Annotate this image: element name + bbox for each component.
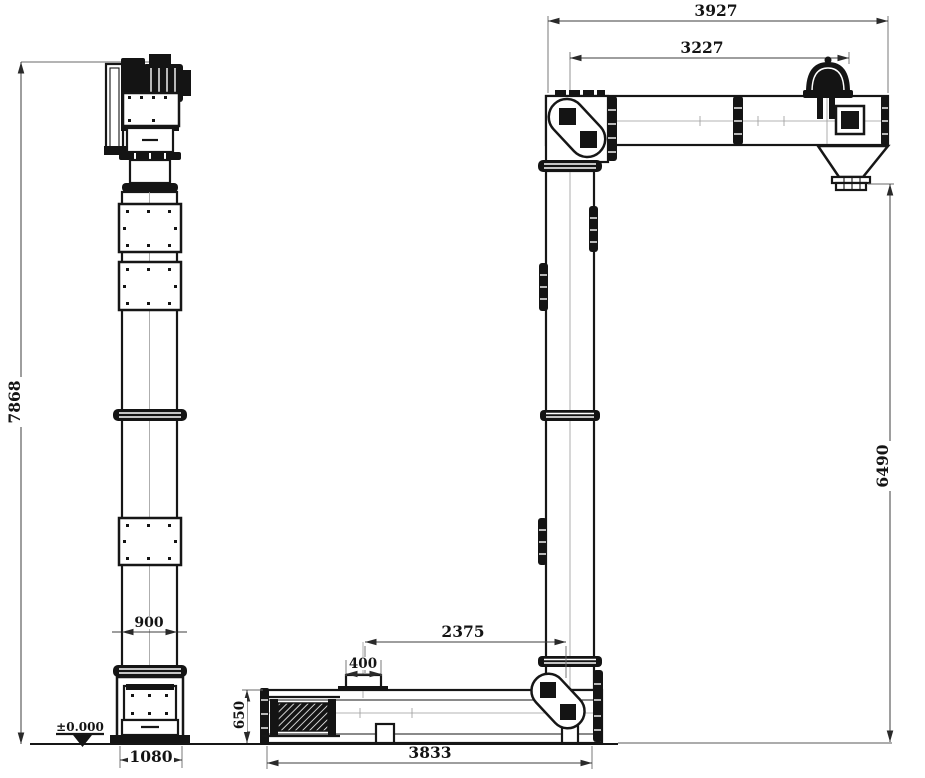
inspection-panel bbox=[119, 262, 181, 310]
sprocket-icon bbox=[559, 108, 576, 125]
inspection-panel bbox=[119, 518, 181, 565]
flange-joint bbox=[607, 96, 617, 161]
tail-drive-motor bbox=[262, 697, 340, 736]
dim-bottom-length-label: 3833 bbox=[408, 743, 451, 762]
flange-joint bbox=[733, 96, 743, 145]
dim-top-inner-label: 3227 bbox=[680, 38, 723, 57]
flange-joint bbox=[538, 656, 602, 667]
ground-level-marker: ±0.000 bbox=[56, 720, 104, 747]
dim-inlet-to-tail-label: 2375 bbox=[441, 622, 484, 641]
rail-bracket bbox=[538, 518, 547, 565]
dim-discharge-height-label: 6490 bbox=[873, 444, 892, 487]
inspection-panel bbox=[119, 204, 181, 252]
head-housing bbox=[123, 93, 179, 126]
dim-trough-height-label: 650 bbox=[232, 701, 248, 729]
dim-discharge-height: 6490 bbox=[868, 184, 894, 742]
rail-bracket bbox=[539, 263, 548, 311]
sprocket-icon bbox=[560, 704, 576, 720]
conveyor-column bbox=[538, 160, 602, 690]
dim-inlet-to-tail: 2375 bbox=[365, 622, 566, 678]
end-flange bbox=[593, 670, 603, 742]
dim-casing-width-label: 900 bbox=[134, 615, 163, 631]
dim-boot-width: 1080 bbox=[120, 746, 182, 768]
dim-bottom-length: 3833 bbox=[267, 743, 592, 769]
flange-joint bbox=[538, 160, 602, 172]
dim-trough-height: 650 bbox=[232, 690, 263, 743]
ga-drawing: 7868 bbox=[0, 0, 925, 778]
flange-joint bbox=[113, 409, 187, 421]
flange-joint bbox=[113, 665, 187, 677]
head-section bbox=[119, 93, 181, 192]
drawing-canvas: 7868 bbox=[0, 0, 925, 778]
dim-top-overall-label: 3927 bbox=[694, 1, 737, 20]
sprocket-icon bbox=[580, 131, 597, 148]
dim-overall-height-label: 7868 bbox=[5, 380, 24, 423]
ground-level-label: ±0.000 bbox=[56, 720, 104, 734]
z-conveyor: 3927 3227 bbox=[232, 1, 894, 769]
boot-section bbox=[110, 677, 190, 743]
end-flange bbox=[881, 96, 889, 145]
level-triangle-icon bbox=[73, 735, 92, 747]
flange-joint bbox=[540, 410, 600, 421]
sprocket-icon bbox=[540, 682, 556, 698]
sprocket-icon bbox=[841, 111, 859, 129]
bucket-elevator: 7868 bbox=[5, 54, 191, 768]
discharge-hopper bbox=[818, 146, 888, 190]
dim-inlet-width: 400 bbox=[346, 656, 381, 676]
drive-support-plate bbox=[106, 64, 123, 152]
motor-icon bbox=[278, 703, 328, 731]
casing-column bbox=[113, 192, 187, 677]
dim-inlet-width-label: 400 bbox=[349, 656, 377, 672]
support-foot bbox=[376, 724, 394, 743]
boot-base bbox=[110, 735, 190, 743]
rail-bracket bbox=[589, 206, 598, 252]
dim-boot-width-label: 1080 bbox=[129, 747, 172, 766]
